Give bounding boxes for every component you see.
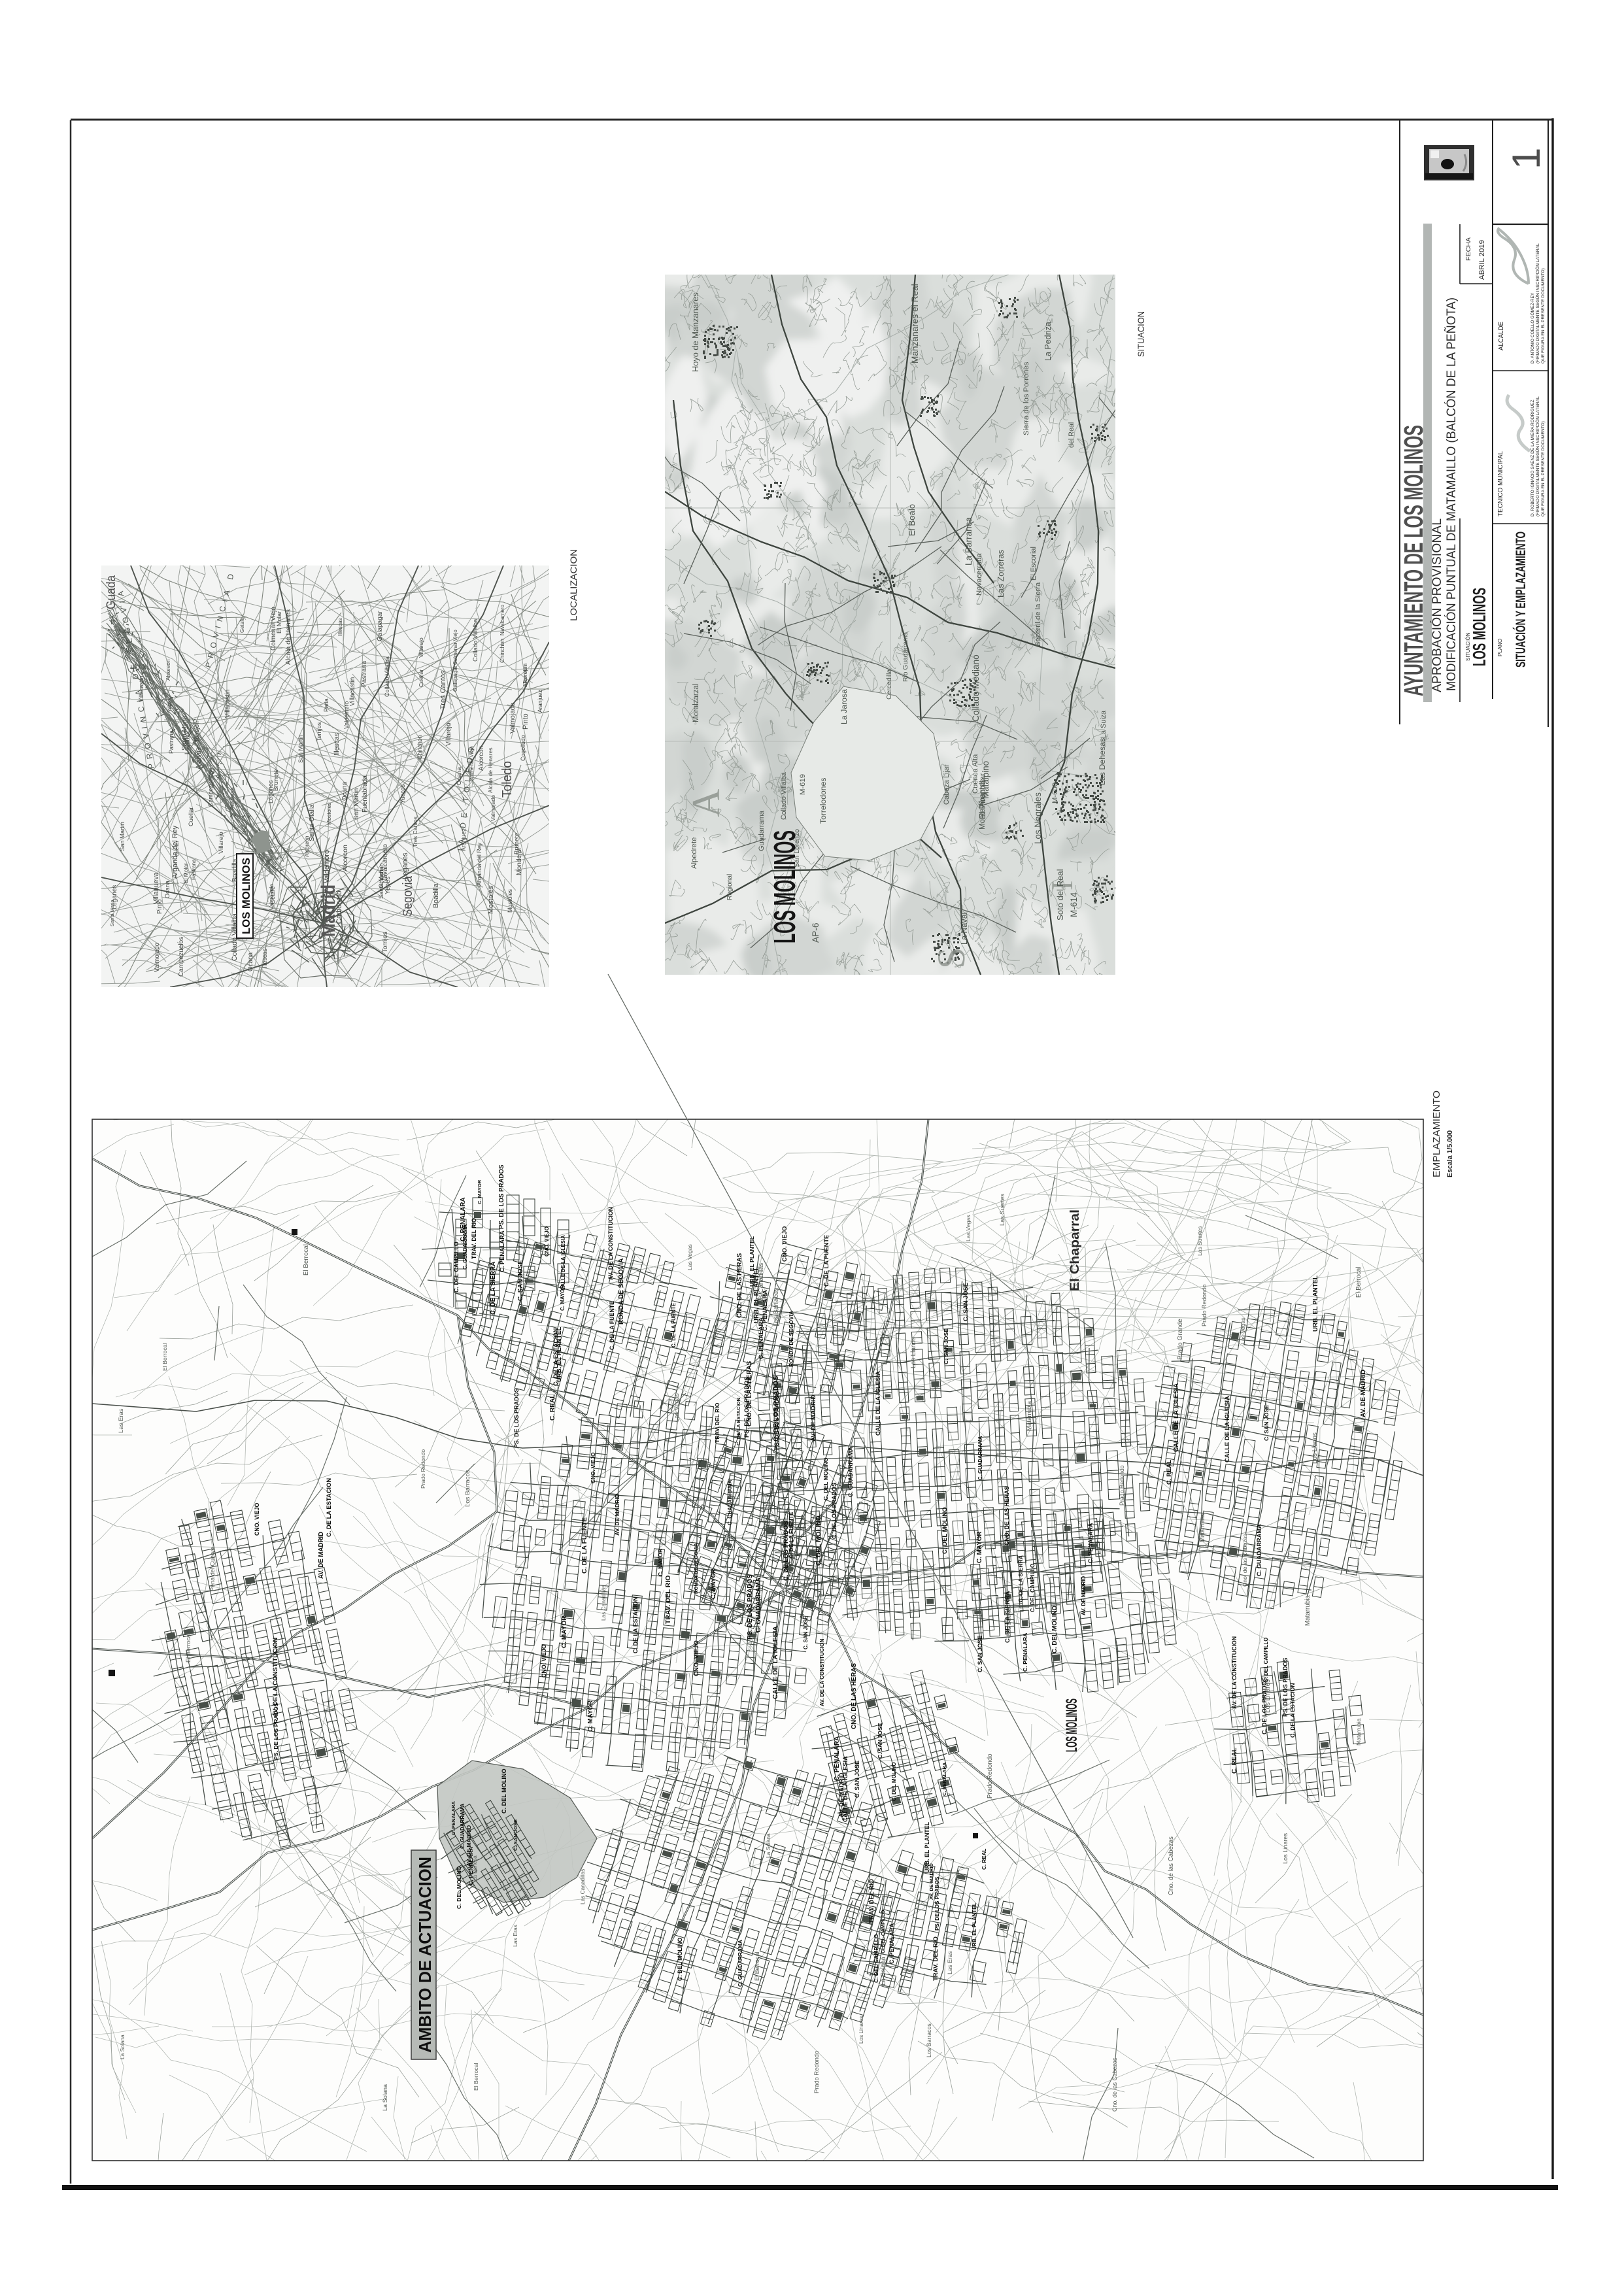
svg-text:C. DE LA SIERRA: C. DE LA SIERRA — [1017, 1555, 1024, 1602]
svg-text:Pinto: Pinto — [522, 713, 530, 730]
svg-text:Alcorcon: Alcorcon — [165, 659, 171, 681]
svg-text:del Real: del Real — [1068, 422, 1075, 448]
svg-text:Boadilla: Boadilla — [432, 883, 440, 908]
svg-text:El Molar: El Molar — [276, 611, 282, 633]
svg-text:Santa Maria: Santa Maria — [181, 715, 188, 751]
svg-text:Collado Villalba: Collado Villalba — [472, 618, 479, 662]
svg-text:Colmenar Viejo: Colmenar Viejo — [452, 630, 458, 665]
svg-text:(FIRMADO DIGITALMENTE SEGÚN IN: (FIRMADO DIGITALMENTE SEGÚN INSCRIPCIÓN … — [1534, 396, 1540, 516]
svg-text:CALLE DE LA IGLESIA: CALLE DE LA IGLESIA — [1173, 1383, 1180, 1452]
svg-text:C. DEL CAMPILLO: C. DEL CAMPILLO — [1263, 1638, 1269, 1682]
svg-text:Chinchon: Chinchon — [499, 639, 505, 663]
svg-text:AV. DE LA CONSTITUCION: AV. DE LA CONSTITUCION — [819, 1639, 825, 1706]
svg-text:Aranjuez: Aranjuez — [460, 828, 467, 851]
svg-text:AV. DE MADRID: AV. DE MADRID — [318, 1532, 325, 1579]
svg-text:Los Linares: Los Linares — [858, 2016, 864, 2044]
svg-text:San Martin: San Martin — [297, 734, 304, 763]
svg-text:Illescas: Illescas — [337, 618, 343, 636]
svg-text:C. DEL MOLINO: C. DEL MOLINO — [891, 1763, 897, 1801]
svg-text:C. MAYOR: C. MAYOR — [477, 1179, 482, 1204]
svg-text:CNO. VIEJO: CNO. VIEJO — [781, 1226, 788, 1262]
svg-text:AP-6: AP-6 — [811, 922, 820, 943]
svg-text:Mostoles: Mostoles — [487, 885, 495, 914]
svg-text:La Pedriza: La Pedriza — [1043, 322, 1053, 361]
svg-text:Las Suertes: Las Suertes — [1006, 1604, 1012, 1636]
svg-text:Illescas: Illescas — [333, 733, 341, 756]
svg-text:C. DE LA ESTACION: C. DE LA ESTACION — [632, 1596, 639, 1653]
svg-text:Torrijos: Torrijos — [316, 722, 322, 741]
svg-text:TRAV. DEL RIO: TRAV. DEL RIO — [665, 1576, 672, 1624]
svg-text:Chinchon: Chinchon — [378, 863, 384, 888]
svg-text:Campezuelos: Campezuelos — [178, 937, 185, 977]
svg-text:CALLE DE LA IGLESIA: CALLE DE LA IGLESIA — [1223, 1396, 1230, 1462]
svg-text:Valdemoro: Valdemoro — [323, 850, 331, 883]
svg-text:Alpedrete: Alpedrete — [690, 837, 698, 869]
svg-text:AV. DE MADRID: AV. DE MADRID — [810, 1395, 817, 1442]
svg-text:Galapagar: Galapagar — [452, 666, 458, 692]
svg-text:Valmojado: Valmojado — [154, 943, 161, 972]
svg-text:Ocana: Ocana — [164, 880, 171, 898]
svg-text:Arganda del Rey: Arganda del Rey — [476, 842, 482, 886]
svg-text:CNO. VIEJO: CNO. VIEJO — [254, 1502, 260, 1536]
svg-text:C. DEL CAMPILLO: C. DEL CAMPILLO — [453, 1241, 460, 1292]
svg-text:Los Linares: Los Linares — [1264, 1680, 1272, 1713]
svg-text:M-614: M-614 — [1069, 892, 1079, 917]
svg-text:Prado Redondo: Prado Redondo — [1201, 1285, 1208, 1326]
svg-text:C. MAYOR: C. MAYOR — [561, 1615, 568, 1648]
svg-text:C. DE LA FUENTE: C. DE LA FUENTE — [671, 1302, 677, 1347]
svg-text:Los Negrales: Los Negrales — [1033, 792, 1043, 844]
svg-text:Los Barracos: Los Barracos — [464, 1470, 471, 1507]
svg-text:Becerril de la Sierra: Becerril de la Sierra — [1034, 582, 1042, 647]
svg-text:C. DEL MOLINO: C. DEL MOLINO — [822, 1457, 829, 1500]
svg-text:MODIFICACIÓN PUNTUAL DE MATAMA: MODIFICACIÓN PUNTUAL DE MATAMAILLO (BALC… — [1444, 297, 1459, 691]
svg-text:C. PENALARA: C. PENALARA — [499, 1230, 505, 1272]
svg-text:C. DE LA ESTACION: C. DE LA ESTACION — [1289, 1683, 1296, 1738]
svg-text:C. GUADARRAMA: C. GUADARRAMA — [755, 1578, 762, 1632]
svg-text:FECHA: FECHA — [1465, 237, 1472, 261]
svg-text:C. REAL: C. REAL — [1166, 1460, 1173, 1485]
svg-text:CALLE DE LA IGLESIA: CALLE DE LA IGLESIA — [875, 1371, 881, 1436]
svg-text:Soto del Real: Soto del Real — [1055, 869, 1065, 920]
svg-text:C. MAYOR: C. MAYOR — [976, 1532, 983, 1563]
svg-text:Prado Redondo: Prado Redondo — [987, 1753, 994, 1798]
svg-text:C. DEL CAMPILLO: C. DEL CAMPILLO — [1029, 1563, 1036, 1612]
svg-text:C. DEL MOLINO: C. DEL MOLINO — [677, 1938, 683, 1981]
svg-text:C. MAYOR: C. MAYOR — [560, 1285, 566, 1311]
svg-text:QUE FIGURA EN EL PRESENTE DOCU: QUE FIGURA EN EL PRESENTE DOCUMENTO) — [1541, 268, 1546, 363]
svg-text:PS. DE LOS PRADOS: PS. DE LOS PRADOS — [498, 1164, 505, 1229]
svg-text:CALLE DE LA IGLESIA: CALLE DE LA IGLESIA — [772, 1626, 779, 1699]
svg-text:Illescas: Illescas — [262, 948, 268, 968]
svg-text:C. DEL MOLINO: C. DEL MOLINO — [941, 1507, 949, 1554]
svg-text:Collado Villalba: Collado Villalba — [384, 656, 390, 697]
svg-text:LOS MOLINOS: LOS MOLINOS — [240, 858, 252, 934]
svg-text:Guada: Guada — [105, 575, 118, 609]
svg-text:Carbonero: Carbonero — [335, 890, 343, 924]
svg-text:Villarejo: Villarejo — [418, 637, 424, 658]
svg-text:Matarrubia: Matarrubia — [1026, 1400, 1033, 1431]
svg-text:PS. DE LOS PRADOS: PS. DE LOS PRADOS — [743, 1377, 750, 1438]
svg-text:C. DE LOS PRADOS: C. DE LOS PRADOS — [772, 1376, 780, 1442]
svg-text:PS. DE LOS PRADOS: PS. DE LOS PRADOS — [1282, 1658, 1289, 1717]
svg-text:Toledo: Toledo — [500, 761, 515, 798]
svg-text:Tres Cantos: Tres Cantos — [439, 670, 447, 709]
svg-text:Villarejo: Villarejo — [445, 722, 452, 746]
svg-text:Brunete: Brunete — [513, 833, 520, 854]
svg-text:Las Eras: Las Eras — [118, 1408, 125, 1433]
svg-text:C. GUADARRAMA: C. GUADARRAMA — [847, 1446, 854, 1497]
svg-text:La Suiza: La Suiza — [1100, 711, 1108, 738]
svg-text:La Solana: La Solana — [382, 2084, 388, 2111]
svg-text:AV. DE MADRID: AV. DE MADRID — [1360, 1370, 1367, 1417]
svg-text:La Solana: La Solana — [880, 1957, 887, 1985]
svg-text:C. SAN JOSE: C. SAN JOSE — [517, 1260, 524, 1301]
svg-text:CNO. VIEJO: CNO. VIEJO — [544, 1226, 550, 1257]
svg-text:AV. DE MADRID: AV. DE MADRID — [1081, 1576, 1087, 1615]
svg-text:C. REAL: C. REAL — [549, 1394, 556, 1421]
svg-text:CNO. VIEJO: CNO. VIEJO — [590, 1452, 596, 1483]
svg-text:Galapagar: Galapagar — [377, 611, 384, 641]
svg-text:C. MAYOR: C. MAYOR — [710, 1568, 717, 1599]
svg-text:La Solana: La Solana — [119, 2034, 126, 2059]
svg-text:AYUNTAMIENTO DE LOS MOLINOS: AYUNTAMIENTO DE LOS MOLINOS — [1398, 425, 1429, 696]
svg-text:Torrejon: Torrejon — [194, 721, 200, 742]
svg-text:C. GUADARRAMA: C. GUADARRAMA — [737, 1940, 743, 1987]
svg-text:Cogolludo: Cogolludo — [520, 735, 526, 761]
svg-text:Villarejo: Villarejo — [218, 832, 225, 854]
svg-text:Pastrana: Pastrana — [361, 661, 368, 687]
svg-text:URB. EL PLANTEL: URB. EL PLANTEL — [556, 1327, 563, 1382]
svg-text:C. SAN JOSE: C. SAN JOSE — [854, 1761, 860, 1798]
svg-text:Los Llanos: Los Llanos — [910, 1337, 917, 1368]
svg-text:Pastrana: Pastrana — [229, 787, 235, 810]
svg-text:Monte Abantos: Monte Abantos — [979, 779, 987, 830]
svg-text:Yuncos: Yuncos — [399, 784, 406, 803]
svg-text:(FIRMADO DIGITALMENTE SEGÚN IN: (FIRMADO DIGITALMENTE SEGÚN INSCRIPCIÓN … — [1534, 243, 1540, 363]
svg-text:Cuellar: Cuellar — [188, 807, 194, 826]
svg-text:La Barranca: La Barranca — [964, 517, 973, 566]
svg-text:Regional: Regional — [726, 874, 734, 900]
svg-text:Cno. de las Cabezas: Cno. de las Cabezas — [1168, 1836, 1175, 1895]
svg-text:Getafe: Getafe — [239, 617, 245, 633]
svg-text:TRAV. DEL RIO: TRAV. DEL RIO — [932, 1936, 939, 1981]
svg-text:C. DEL CAMPILLO: C. DEL CAMPILLO — [873, 1934, 879, 1983]
svg-text:D. ANTONIO COELLO GÓMEZ-REY: D. ANTONIO COELLO GÓMEZ-REY — [1529, 292, 1535, 363]
svg-text:D. ROBERTO IGNACIO SAENZ DE LA: D. ROBERTO IGNACIO SAENZ DE LA MIERA ROD… — [1531, 399, 1535, 516]
svg-text:Las Eras: Las Eras — [512, 1925, 518, 1947]
svg-text:PS. DE LOS PRADOS: PS. DE LOS PRADOS — [934, 1876, 940, 1931]
svg-text:Colmenar Viejo: Colmenar Viejo — [469, 746, 475, 781]
svg-text:APROBACIÓN PROVISIONAL: APROBACIÓN PROVISIONAL — [1430, 518, 1444, 692]
svg-text:Ocana: Ocana — [341, 781, 348, 801]
svg-text:San Martin: San Martin — [119, 822, 126, 851]
svg-text:C. PENALARA: C. PENALARA — [1087, 1523, 1094, 1563]
svg-text:C. PENALARA: C. PENALARA — [834, 1736, 841, 1781]
svg-text:TECNICO MUNICIPAL: TECNICO MUNICIPAL — [1497, 451, 1504, 516]
svg-text:AMBITO DE ACTUACION: AMBITO DE ACTUACION — [415, 1857, 435, 2053]
svg-text:Cno. de las Cabezas: Cno. de las Cabezas — [1111, 2057, 1118, 2112]
svg-text:LOS MOLINOS: LOS MOLINOS — [1469, 588, 1489, 666]
svg-text:Sierra de los Porrones: Sierra de los Porrones — [1023, 362, 1030, 435]
svg-text:El Berrocal: El Berrocal — [303, 1244, 310, 1275]
svg-text:QUE FIGURA EN EL PRESENTE DOCU: QUE FIGURA EN EL PRESENTE DOCUMENTO) — [1541, 421, 1546, 516]
svg-text:Las Canadillas: Las Canadillas — [579, 1869, 586, 1904]
svg-text:Las Zorreras: Las Zorreras — [996, 550, 1006, 598]
svg-text:A: A — [685, 789, 728, 817]
svg-text:Collado Villalba: Collado Villalba — [780, 772, 788, 820]
svg-text:C. GUADARRAMA: C. GUADARRAMA — [462, 1224, 468, 1270]
svg-text:El Berrocal: El Berrocal — [1355, 1267, 1362, 1298]
svg-text:CNO. DE LAS HERAS: CNO. DE LAS HERAS — [1004, 1486, 1010, 1545]
svg-text:Valmojado: Valmojado — [490, 795, 496, 821]
svg-text:Ajalvir: Ajalvir — [195, 750, 203, 769]
svg-text:C. PENALARA: C. PENALARA — [450, 1801, 456, 1835]
svg-text:C. DEL MOLINO: C. DEL MOLINO — [501, 1768, 507, 1814]
svg-text:Cuellar: Cuellar — [418, 669, 424, 687]
svg-text:Los Barracos: Los Barracos — [926, 2023, 932, 2057]
svg-text:Parla: Parla — [323, 698, 330, 712]
svg-text:C. DE LOS PRADOS: C. DE LOS PRADOS — [831, 1483, 837, 1539]
svg-text:PLANO: PLANO — [1497, 639, 1503, 656]
svg-text:Cercedilla: Cercedilla — [886, 669, 893, 700]
svg-text:CNO. VIEJO: CNO. VIEJO — [693, 1640, 700, 1676]
svg-text:El Berrocal: El Berrocal — [754, 1952, 760, 1981]
svg-text:RONDA DE SEGOVIA: RONDA DE SEGOVIA — [618, 1258, 625, 1325]
svg-text:El Berrocal: El Berrocal — [161, 1343, 168, 1371]
svg-text:San Lorenzo: San Lorenzo — [794, 829, 801, 868]
svg-text:M-619: M-619 — [799, 774, 807, 795]
svg-text:Torrelodones: Torrelodones — [819, 778, 828, 824]
svg-text:C. DE LA ESTACION: C. DE LA ESTACION — [325, 1478, 332, 1537]
svg-text:Las Eras: Las Eras — [947, 1951, 953, 1974]
svg-text:C. GUADARRAMA: C. GUADARRAMA — [977, 1436, 983, 1480]
svg-text:Los Barracos: Los Barracos — [773, 1288, 780, 1326]
svg-text:C. PENALARA: C. PENALARA — [1022, 1632, 1028, 1672]
svg-text:CNO. DE LAS HERAS: CNO. DE LAS HERAS — [851, 1663, 858, 1729]
svg-text:C. MAYOR: C. MAYOR — [657, 1548, 664, 1576]
svg-text:C. REAL: C. REAL — [1231, 1748, 1238, 1774]
svg-text:PS. DE LOS PRADOS: PS. DE LOS PRADOS — [513, 1388, 520, 1448]
svg-text:Valmojado: Valmojado — [509, 703, 516, 734]
svg-text:Moralzarzal: Moralzarzal — [692, 684, 700, 722]
svg-text:Las Dehesas: Las Dehesas — [1098, 738, 1107, 785]
svg-text:La Solana: La Solana — [765, 1833, 771, 1858]
svg-text:Alcala de Henares: Alcala de Henares — [285, 609, 292, 665]
svg-text:TRAV. DEL RIO: TRAV. DEL RIO — [714, 1402, 720, 1443]
svg-text:Matarrubia: Matarrubia — [1304, 1595, 1311, 1626]
svg-text:C. DE LA FUENTE: C. DE LA FUENTE — [788, 1511, 794, 1559]
svg-text:Collado Mediano: Collado Mediano — [971, 654, 981, 722]
svg-text:Las Vegas: Las Vegas — [673, 1393, 680, 1422]
svg-text:Pastrana: Pastrana — [168, 730, 175, 754]
svg-text:URB. EL PLANTEL: URB. EL PLANTEL — [972, 1902, 977, 1950]
svg-text:Prado Redondo: Prado Redondo — [1119, 1465, 1125, 1506]
svg-text:C. DE LA SIERRA: C. DE LA SIERRA — [490, 1262, 497, 1315]
svg-text:CNO. VIEJO: CNO. VIEJO — [541, 1644, 547, 1678]
svg-text:SITUACIÓN Y EMPLAZAMIENTO: SITUACIÓN Y EMPLAZAMIENTO — [1513, 532, 1529, 667]
svg-text:C. DE LA FUENTE: C. DE LA FUENTE — [823, 1235, 830, 1287]
svg-text:Chinchon: Chinchon — [416, 735, 423, 760]
svg-text:CALLE DE LA IGLESIA: CALLE DE LA IGLESIA — [842, 1756, 849, 1822]
svg-text:C. SAN JOSE: C. SAN JOSE — [962, 1283, 969, 1321]
svg-text:El Escorial: El Escorial — [1030, 547, 1038, 581]
svg-text:ALCALDE: ALCALDE — [1498, 322, 1505, 350]
svg-text:Los Linares: Los Linares — [1282, 1833, 1289, 1864]
svg-text:LOS MOLINOS: LOS MOLINOS — [1063, 1698, 1081, 1752]
svg-text:Las Suertes: Las Suertes — [999, 1194, 1006, 1226]
svg-text:Pena del Cuervo: Pena del Cuervo — [209, 1547, 216, 1591]
svg-text:Aranjuez: Aranjuez — [537, 690, 543, 713]
svg-text:C. DE LA FUENTE: C. DE LA FUENTE — [609, 1301, 615, 1350]
svg-text:Pinto: Pinto — [156, 899, 163, 914]
svg-text:Leganes: Leganes — [267, 780, 274, 803]
svg-text:Hoyo de Manzanares: Hoyo de Manzanares — [690, 292, 700, 372]
svg-text:C. GUADARRAMA: C. GUADARRAMA — [1256, 1524, 1262, 1576]
svg-text:TRAV. DEL RIO: TRAV. DEL RIO — [868, 1879, 875, 1923]
svg-text:Mostoles: Mostoles — [507, 888, 513, 913]
svg-text:Escala 1/5.000: Escala 1/5.000 — [1446, 1130, 1454, 1177]
svg-text:Cuellar: Cuellar — [174, 840, 180, 856]
svg-text:Yepes: Yepes — [167, 698, 173, 712]
svg-text:Pastrana: Pastrana — [191, 859, 197, 880]
svg-text:RONDA DE SEGOVIA: RONDA DE SEGOVIA — [693, 1543, 699, 1594]
svg-text:C. PENALARA: C. PENALARA — [941, 1762, 947, 1796]
svg-text:Ocana: Ocana — [456, 767, 462, 785]
svg-text:C. SAN JOSE: C. SAN JOSE — [943, 1328, 949, 1364]
svg-text:C. SAN JOSE: C. SAN JOSE — [877, 1723, 883, 1759]
svg-text:C. SAN JOSE: C. SAN JOSE — [977, 1636, 983, 1672]
svg-text:Guadarrama: Guadarrama — [758, 810, 766, 851]
svg-text:C. DE LA FUENTE: C. DE LA FUENTE — [581, 1517, 588, 1574]
svg-text:C. REAL: C. REAL — [981, 1849, 987, 1870]
svg-text:AV. DE MADRID: AV. DE MADRID — [928, 1863, 934, 1900]
svg-text:Collado Villalba: Collado Villalba — [231, 913, 239, 961]
svg-text:Navacerrada: Navacerrada — [975, 553, 983, 596]
svg-text:Las Vegas: Las Vegas — [965, 1215, 972, 1241]
svg-text:M-600: M-600 — [1051, 783, 1059, 803]
svg-text:El Chaparral: El Chaparral — [1068, 1209, 1082, 1291]
svg-text:San Martin: San Martin — [353, 788, 360, 820]
svg-text:Boadilla: Boadilla — [231, 858, 239, 882]
svg-text:EMPLAZAMIENTO: EMPLAZAMIENTO — [1431, 1090, 1442, 1177]
svg-text:Valmojado: Valmojado — [268, 884, 275, 910]
svg-text:CNO. DE LAS HERAS: CNO. DE LAS HERAS — [736, 1253, 743, 1318]
svg-text:C. SAN JOSE: C. SAN JOSE — [803, 1615, 809, 1649]
svg-text:Cno. de las Cabezas: Cno. de las Cabezas — [1242, 1534, 1248, 1587]
svg-text:Las Vegas: Las Vegas — [1240, 1317, 1246, 1344]
svg-text:Las Canadillas: Las Canadillas — [758, 1263, 765, 1305]
svg-text:Los Llanos: Los Llanos — [1311, 1432, 1319, 1464]
svg-text:Prado Redondo: Prado Redondo — [813, 2051, 820, 2093]
svg-text:La Naval: La Naval — [960, 913, 969, 945]
svg-text:El Molar: El Molar — [182, 863, 189, 883]
svg-text:S: S — [930, 947, 973, 969]
svg-text:Villacastin: Villacastin — [349, 677, 356, 706]
svg-text:PS. DE LOS PRADOS: PS. DE LOS PRADOS — [273, 1702, 279, 1760]
svg-text:Las Suertes: Las Suertes — [1196, 1226, 1203, 1256]
svg-text:C. DEL MOLINO: C. DEL MOLINO — [1051, 1606, 1058, 1653]
svg-text:Alcorcon: Alcorcon — [478, 746, 485, 771]
svg-text:Cabeza Lijar: Cabeza Lijar — [943, 764, 951, 805]
svg-text:Prado Redondo: Prado Redondo — [420, 1449, 426, 1489]
svg-text:AV. DE LA CONSTITUCION: AV. DE LA CONSTITUCION — [1231, 1636, 1238, 1709]
svg-text:Santa Maria: Santa Maria — [109, 900, 115, 926]
svg-text:C. GUADARRAMA: C. GUADARRAMA — [727, 1479, 733, 1525]
svg-text:Yepes: Yepes — [384, 877, 392, 894]
svg-text:Alcorcon: Alcorcon — [303, 836, 310, 857]
svg-text:El Berrocal: El Berrocal — [185, 1633, 192, 1663]
svg-text:SITUACION: SITUACION — [1136, 311, 1146, 357]
svg-text:El Berrocal: El Berrocal — [473, 2063, 479, 2091]
svg-text:Villacastin: Villacastin — [138, 676, 144, 702]
svg-text:C. PENALARA: C. PENALARA — [888, 1923, 895, 1964]
svg-text:Tres Cantos: Tres Cantos — [412, 816, 418, 847]
svg-text:Alcala de Henares: Alcala de Henares — [487, 748, 494, 793]
svg-text:PS. DE LOS PRADOS: PS. DE LOS PRADOS — [747, 1574, 754, 1640]
svg-text:C. MAYOR: C. MAYOR — [587, 1700, 594, 1732]
svg-text:URB. EL PLANTEL: URB. EL PLANTEL — [1312, 1275, 1319, 1332]
svg-text:Las Canadillas: Las Canadillas — [600, 1585, 607, 1621]
svg-text:C. DE LA ESTACION: C. DE LA ESTACION — [736, 1398, 741, 1445]
svg-text:Mostoles: Mostoles — [326, 802, 332, 825]
svg-text:El Boalo: El Boalo — [907, 504, 917, 536]
svg-text:Fuenlabrada: Fuenlabrada — [362, 775, 369, 813]
svg-text:Navalcarnero: Navalcarnero — [499, 604, 505, 635]
svg-text:AV. DE LA CONSTITUCION: AV. DE LA CONSTITUCION — [607, 1207, 614, 1280]
svg-text:Torrijos: Torrijos — [382, 932, 389, 953]
svg-text:RONDA DE SEGOVIA: RONDA DE SEGOVIA — [788, 1311, 794, 1367]
svg-text:Prado Grande: Prado Grande — [1177, 1319, 1184, 1360]
svg-text:Valdemoro: Valdemoro — [343, 701, 350, 729]
svg-text:Segovia: Segovia — [401, 875, 415, 917]
svg-text:Ocana: Ocana — [247, 952, 254, 971]
svg-text:AV. DE MADRID: AV. DE MADRID — [614, 1494, 620, 1536]
svg-text:C. SAN JOSE: C. SAN JOSE — [1263, 1405, 1270, 1441]
svg-text:LOCALIZACION: LOCALIZACION — [568, 549, 579, 621]
svg-text:La Jarosa: La Jarosa — [839, 689, 849, 724]
svg-text:C. DEL CAMPILLO: C. DEL CAMPILLO — [880, 1910, 886, 1953]
svg-text:1: 1 — [1504, 148, 1548, 169]
svg-text:Rio Guadarrama: Rio Guadarrama — [902, 632, 909, 682]
svg-text:Villacastin: Villacastin — [224, 690, 231, 718]
svg-text:La Dehesa: La Dehesa — [472, 1855, 478, 1881]
svg-text:C. GUADARRAMA: C. GUADARRAMA — [460, 1803, 465, 1849]
svg-text:ABRIL 2019: ABRIL 2019 — [1478, 240, 1486, 280]
svg-text:Leganes: Leganes — [401, 853, 409, 879]
svg-text:Campezuelos: Campezuelos — [207, 771, 214, 807]
svg-text:Matarrubia: Matarrubia — [1355, 1718, 1362, 1746]
svg-text:Las Vegas: Las Vegas — [686, 1244, 693, 1270]
svg-text:C. SAN JOSE: C. SAN JOSE — [513, 1819, 518, 1851]
svg-text:TRAV. DEL RIO: TRAV. DEL RIO — [471, 1218, 477, 1259]
svg-text:C. DEL MOLINO: C. DEL MOLINO — [456, 1866, 462, 1909]
svg-text:C. DEL MOLINO: C. DEL MOLINO — [815, 1515, 822, 1566]
svg-text:CALLE DE LA IGLESIA: CALLE DE LA IGLESIA — [560, 1235, 566, 1291]
svg-text:Alcorcon: Alcorcon — [341, 845, 349, 871]
svg-text:Alcorcon: Alcorcon — [522, 665, 528, 687]
svg-text:Manzanares el Real: Manzanares el Real — [910, 284, 920, 363]
svg-text:Matarrubia: Matarrubia — [1199, 1514, 1206, 1542]
